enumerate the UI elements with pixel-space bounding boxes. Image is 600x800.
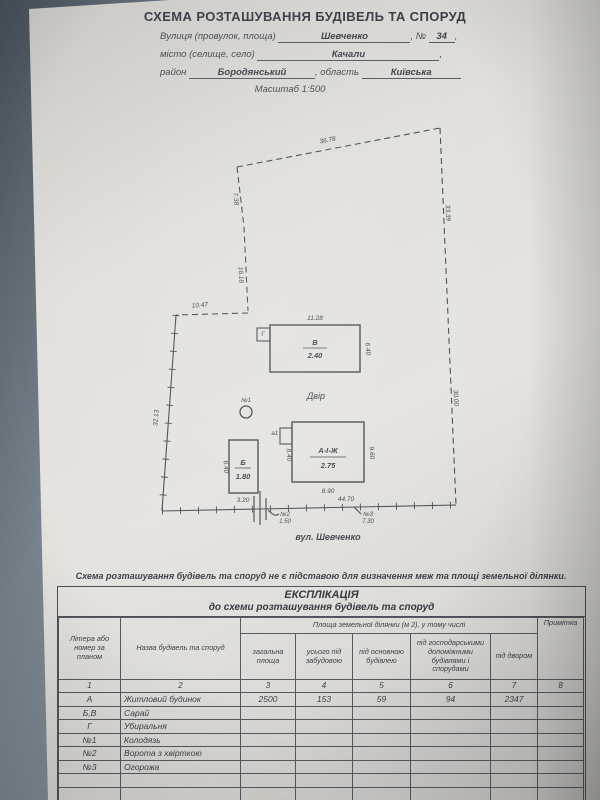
colnum-6: 6 (411, 680, 491, 693)
page-title: СХЕМА РОЗТАШУВАННЯ БУДІВЕЛЬ ТА СПОРУД (30, 9, 580, 24)
hdr-name: Назва будівель та споруд (121, 618, 241, 680)
cell-main (353, 747, 411, 761)
number-label: , № (410, 31, 426, 42)
cell-total (241, 720, 296, 734)
explication-grid: Літера або номер за планом Назва будівел… (58, 617, 584, 800)
cell-letter: №3 (59, 760, 121, 774)
comma-1: , (455, 31, 458, 42)
fence-callout-label: №3 (363, 511, 373, 518)
cell-built (296, 733, 353, 747)
cell-yard (491, 774, 538, 788)
cell-built (296, 720, 353, 734)
table-title: ЕКСПЛІКАЦІЯ (58, 589, 585, 601)
hdr-area-group: Площа земельної ділянки (м 2), у тому чи… (241, 618, 538, 634)
shed-b-side-dim: 6.40 (222, 460, 230, 473)
cell-letter (59, 787, 121, 800)
cell-main (353, 706, 411, 720)
cell-note (538, 693, 584, 707)
house-right-dim: 9.60 (368, 446, 376, 459)
cell-total (241, 733, 296, 747)
cell-main (353, 760, 411, 774)
cell-built (296, 760, 353, 774)
annex-a1-label: а1 (271, 431, 278, 437)
cell-note (538, 706, 584, 720)
table-row (59, 787, 584, 800)
street-label: Вулиця (провулок, площа) (160, 31, 276, 42)
region-label: , область (315, 67, 359, 78)
cell-main (353, 733, 411, 747)
house-left-dim: 8.40 (285, 448, 293, 461)
colnum-3: 3 (241, 680, 296, 693)
site-plan: 36.78 33.39 30.00 7.38 16.18 10.47 32.13… (88, 103, 508, 563)
house-height: 2.75 (320, 461, 336, 470)
well-symbol (240, 406, 252, 418)
cell-yard (491, 733, 538, 747)
shed-v-side-dim: 6.40 (364, 342, 372, 355)
shed-v-top-dim: 11.28 (307, 315, 323, 322)
street-value: Шевченко (278, 31, 410, 43)
cell-built (296, 706, 353, 720)
comma-2: , (439, 49, 442, 60)
cell-total (241, 787, 296, 800)
city-value: Качали (257, 49, 439, 61)
hdr-built-up: усього під забудовою (296, 634, 353, 680)
cell-letter: №1 (59, 733, 121, 747)
cell-total (241, 747, 296, 761)
form-row-street: Вулиця (провулок, площа) Шевченко, № 34, (160, 31, 470, 43)
table-row: Г Убиральня (59, 720, 584, 734)
cell-letter: Г (59, 720, 121, 734)
house-bottom-dim: 8.90 (322, 488, 335, 495)
cell-letter: №2 (59, 747, 121, 761)
gate-callout-dim: 1.50 (279, 519, 291, 525)
cell-letter (59, 774, 121, 788)
dim-left-mid: 16.18 (237, 267, 245, 284)
cell-out (411, 720, 491, 734)
dim-right-upper: 33.39 (444, 205, 452, 222)
district-value: Бородянський (189, 67, 315, 79)
cell-note (538, 760, 584, 774)
house-number-value: 34 (429, 31, 455, 43)
cell-note (538, 720, 584, 734)
cell-out (411, 733, 491, 747)
dim-step: 10.47 (192, 301, 209, 309)
cell-total: 2500 (241, 693, 296, 707)
hdr-main-building: під основною будівлею (353, 634, 411, 680)
form-row-city: місто (селище, село) Качали, (160, 49, 470, 61)
yard-label: Двір (306, 391, 325, 401)
cell-main (353, 787, 411, 800)
cell-out (411, 706, 491, 720)
dim-bottom: 44.70 (338, 496, 355, 503)
cell-name: Огорожа (121, 760, 241, 774)
cell-built (296, 747, 353, 761)
cell-out (411, 747, 491, 761)
street-name-label: вул. Шевченко (295, 532, 361, 542)
shed-v-letter: В (312, 338, 318, 347)
cell-note (538, 787, 584, 800)
cell-out (411, 760, 491, 774)
cell-main: 59 (353, 693, 411, 707)
cell-yard (491, 787, 538, 800)
cell-yard (491, 760, 538, 774)
hdr-yard: під двором (491, 634, 538, 680)
colnum-7: 7 (491, 680, 538, 693)
dim-left-lower: 32.13 (152, 409, 160, 426)
shed-b-height: 1.80 (236, 472, 251, 481)
cell-note (538, 774, 584, 788)
cell-total (241, 760, 296, 774)
colnum-2: 2 (121, 680, 241, 693)
cell-note (538, 747, 584, 761)
cell-main (353, 720, 411, 734)
photo-of-document: СХЕМА РОЗТАШУВАННЯ БУДІВЕЛЬ ТА СПОРУД Ву… (0, 0, 600, 800)
cell-name: Убиральня (121, 720, 241, 734)
hdr-letter: Літера або номер за планом (59, 618, 121, 680)
table-row: №2 Ворота з хвірткою (59, 747, 584, 761)
district-label: район (160, 67, 186, 78)
shed-b-bottom-dim: 3.20 (237, 497, 250, 504)
table-title-block: ЕКСПЛІКАЦІЯ до схеми розташування будіве… (58, 587, 585, 617)
city-label: місто (селище, село) (160, 49, 255, 60)
colnum-5: 5 (353, 680, 411, 693)
cell-out (411, 787, 491, 800)
cell-note (538, 733, 584, 747)
column-number-row: 1 2 3 4 5 6 7 8 (59, 680, 584, 693)
explication-table: ЕКСПЛІКАЦІЯ до схеми розташування будіве… (57, 586, 586, 800)
cell-yard: 2347 (491, 693, 538, 707)
cell-name (121, 787, 241, 800)
gate-callout-label: №2 (280, 511, 290, 518)
cell-yard (491, 720, 538, 734)
table-row (59, 774, 584, 788)
cell-built: 153 (296, 693, 353, 707)
hdr-note: Примітка (538, 618, 584, 680)
cell-name: Сарай (121, 706, 241, 720)
hdr-total-area: загальна площа (241, 634, 296, 680)
region-value: Київська (362, 67, 461, 79)
shed-b-letter: Б (240, 458, 246, 467)
table-subtitle: до схеми розташування будівель та споруд (58, 602, 585, 613)
house-letter: А-І-Ж (317, 446, 338, 455)
cell-yard (491, 706, 538, 720)
dim-top: 36.78 (319, 135, 337, 145)
cell-out (411, 774, 491, 788)
cell-yard (491, 747, 538, 761)
cell-name: Ворота з хвірткою (121, 747, 241, 761)
disclaimer-text: Схема розташування будівель та споруд не… (57, 571, 585, 581)
building-shed-v (257, 325, 360, 372)
shed-v-height: 2.40 (307, 351, 323, 360)
table-row: №1 Колодязь (59, 733, 584, 747)
fence-callout-dim: 7.30 (362, 519, 374, 525)
cell-total (241, 774, 296, 788)
cell-total (241, 706, 296, 720)
well-label: №1 (241, 397, 251, 404)
dim-right-lower: 30.00 (452, 390, 460, 407)
colnum-8: 8 (538, 680, 584, 693)
colnum-4: 4 (296, 680, 353, 693)
scale-label: Масштаб 1:500 (160, 84, 420, 95)
cell-letter: Б,В (59, 706, 121, 720)
cell-name: Житловий будинок (121, 693, 241, 707)
colnum-1: 1 (59, 680, 121, 693)
table-row: №3 Огорожа (59, 760, 584, 774)
table-row: А Житловий будинок 2500 153 59 94 2347 (59, 693, 584, 707)
cell-letter: А (59, 693, 121, 707)
dim-left-upper: 7.38 (231, 192, 239, 206)
cell-built (296, 774, 353, 788)
cell-main (353, 774, 411, 788)
cell-out: 94 (411, 693, 491, 707)
header-form: Вулиця (провулок, площа) Шевченко, № 34,… (160, 31, 470, 85)
table-row: Б,В Сарай (59, 706, 584, 720)
annex-g-letter: Г (261, 332, 265, 338)
hdr-outbuildings: під господарськими допоміжними будівлями… (411, 634, 491, 680)
cell-built (296, 787, 353, 800)
cell-name: Колодязь (121, 733, 241, 747)
cell-name (121, 774, 241, 788)
form-row-district: район Бородянський, область Київська (160, 67, 470, 79)
